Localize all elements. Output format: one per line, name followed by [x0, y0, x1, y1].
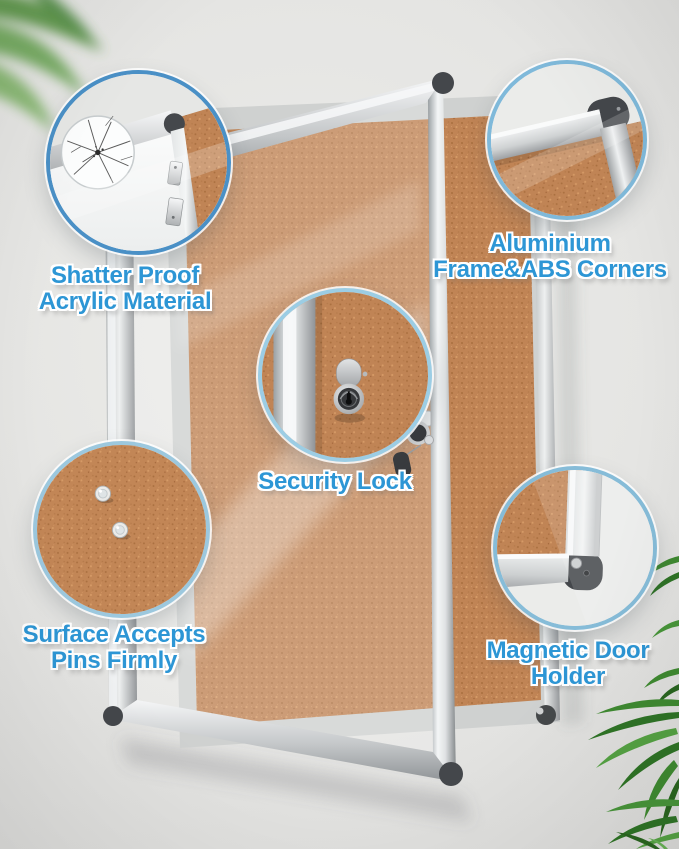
magnet-corner-graphic [497, 470, 653, 626]
callout-circle-security-lock [258, 288, 432, 462]
callout-circle-shatter-proof [46, 70, 231, 255]
callout-circle-magnetic-holder [493, 466, 657, 630]
label-line: Security Lock [235, 469, 435, 495]
callout-circle-aluminium-frame [487, 60, 647, 220]
label-line: Surface Accepts [8, 622, 220, 648]
label-line: Magnetic Door [462, 638, 674, 664]
callout-label-magnetic-holder: Magnetic Door Holder [462, 638, 674, 690]
key [425, 436, 434, 445]
product-feature-image: Shatter Proof Acrylic Material Aluminium… [0, 0, 679, 849]
abs-corner-cap [103, 706, 123, 726]
shatter-crack-graphic [50, 74, 227, 251]
label-line: Aluminium [428, 231, 672, 257]
callout-label-aluminium-frame: Aluminium Frame&ABS Corners [428, 231, 672, 283]
label-line: Frame&ABS Corners [428, 257, 672, 283]
magnet-dot [537, 708, 544, 715]
pins-graphic [37, 445, 206, 614]
callout-label-security-lock: Security Lock [235, 469, 435, 495]
abs-corner-cap [432, 72, 454, 94]
lock-graphic [262, 292, 428, 458]
callout-label-pin-surface: Surface Accepts Pins Firmly [8, 622, 220, 674]
frame-corner-graphic [491, 64, 643, 216]
callout-label-shatter-proof: Shatter Proof Acrylic Material [10, 263, 240, 315]
label-line: Acrylic Material [10, 289, 240, 315]
callout-circle-pin-surface [33, 441, 210, 618]
label-line: Pins Firmly [8, 648, 220, 674]
label-line: Holder [462, 664, 674, 690]
label-line: Shatter Proof [10, 263, 240, 289]
abs-corner-cap [439, 762, 463, 786]
